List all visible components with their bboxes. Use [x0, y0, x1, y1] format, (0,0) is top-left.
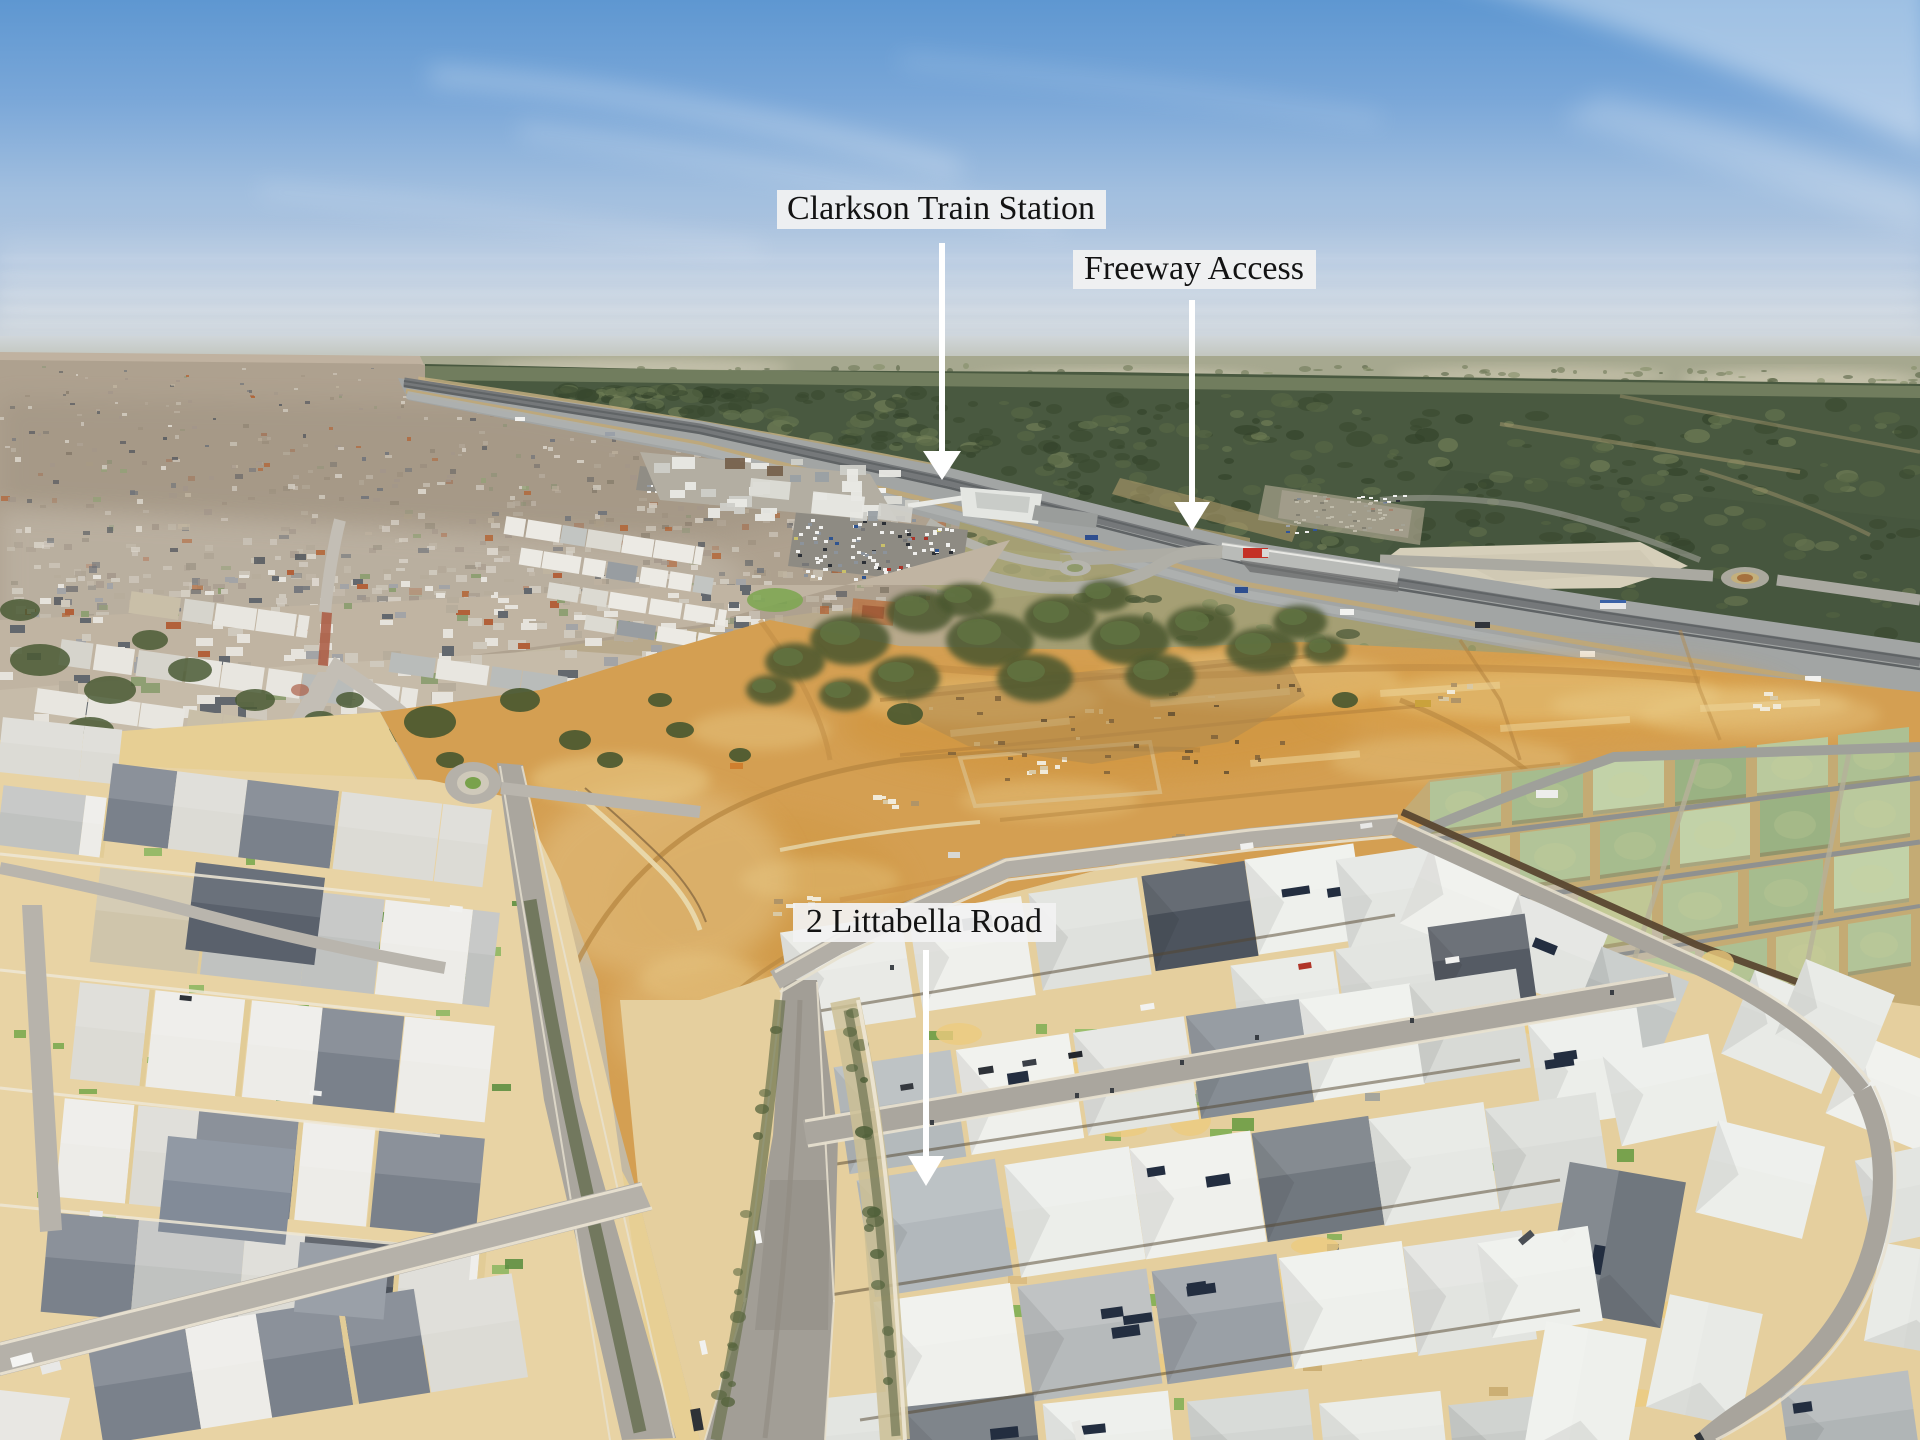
svg-text:Clarkson Train Station: Clarkson Train Station	[787, 190, 1095, 227]
svg-text:2 Littabella Road: 2 Littabella Road	[806, 903, 1042, 940]
svg-text:Freeway Access: Freeway Access	[1084, 250, 1304, 287]
